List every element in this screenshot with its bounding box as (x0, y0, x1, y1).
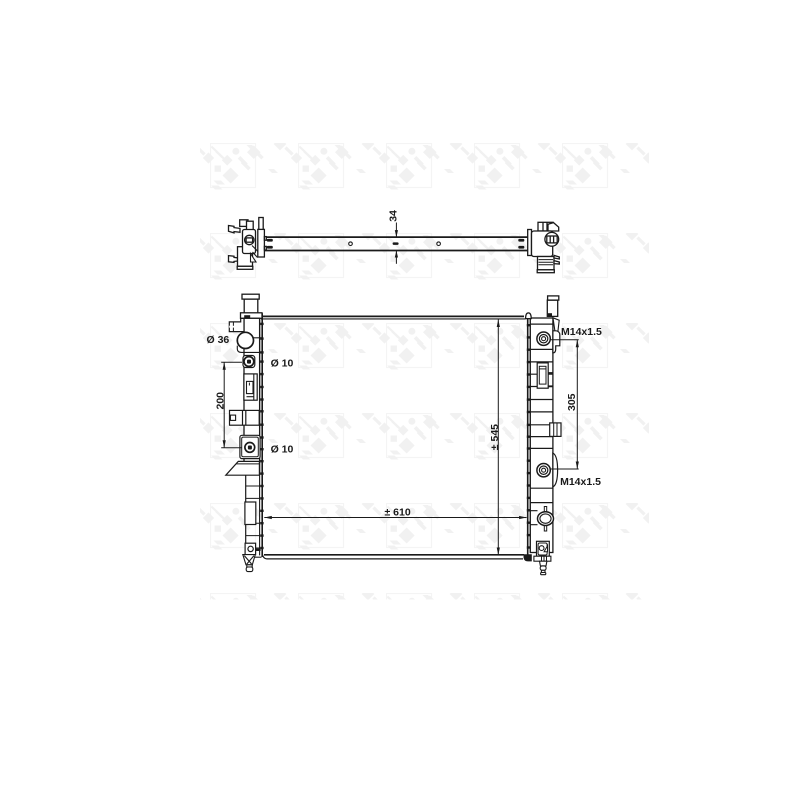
svg-text:M14x1.5: M14x1.5 (561, 326, 602, 338)
svg-text:Ø 36: Ø 36 (207, 334, 230, 346)
svg-text:M14x1.5: M14x1.5 (560, 476, 601, 488)
svg-text:305: 305 (566, 393, 578, 411)
svg-text:Ø 10: Ø 10 (271, 443, 294, 455)
svg-text:± 545: ± 545 (489, 424, 501, 450)
svg-text:200: 200 (214, 392, 226, 410)
svg-text:34: 34 (388, 210, 400, 222)
svg-text:Ø 10: Ø 10 (271, 357, 294, 369)
svg-text:± 610: ± 610 (385, 506, 411, 518)
